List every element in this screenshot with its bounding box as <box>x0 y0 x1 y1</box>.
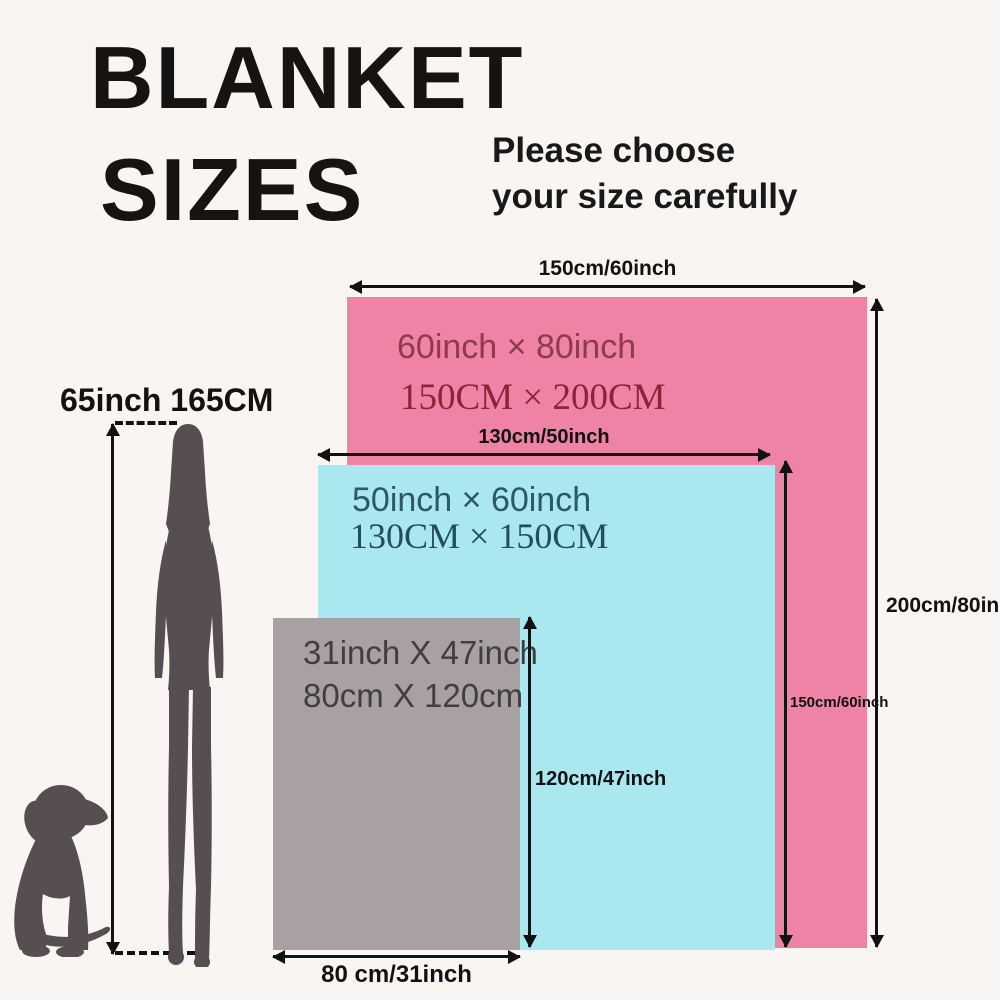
page-title-line2: SIZES <box>100 146 524 234</box>
subtitle: Please choose your size carefully <box>492 128 797 220</box>
dog-silhouette <box>6 782 121 957</box>
page-title-line1: BLANKET <box>90 34 524 122</box>
blanket-large-cm-label: 150CM × 200CM <box>400 376 666 419</box>
width-label-small: 80 cm/31inch <box>250 961 543 989</box>
blanket-medium-cm-label: 130CM × 150CM <box>350 515 608 557</box>
height-arrow-medium <box>784 461 787 947</box>
width-arrow-large <box>350 285 865 288</box>
height-label-small: 120cm/47inch <box>535 768 666 791</box>
blanket-large-inch-label: 60inch × 80inch <box>397 328 636 367</box>
height-label-large: 200cm/80inch <box>886 594 1000 618</box>
height-arrow-large <box>875 299 878 947</box>
blanket-size-infographic: BLANKET SIZES Please choose your size ca… <box>0 0 1000 1000</box>
width-label-medium: 130cm/50inch <box>318 426 770 449</box>
woman-silhouette-icon <box>138 422 238 967</box>
width-label-large: 150cm/60inch <box>350 257 865 281</box>
height-arrow-small <box>528 617 531 947</box>
person-height-label: 65inch 165CM <box>60 382 273 419</box>
dog-silhouette-icon <box>6 782 121 957</box>
subtitle-line1: Please choose <box>492 128 797 174</box>
width-arrow-medium <box>318 453 770 456</box>
height-label-medium: 150cm/60inch <box>790 694 888 711</box>
page-title: BLANKET SIZES <box>90 34 524 234</box>
woman-silhouette <box>138 422 238 967</box>
subtitle-line2: your size carefully <box>492 174 797 220</box>
width-arrow-small <box>273 955 520 958</box>
blanket-small-cm-label: 80cm X 120cm <box>303 677 523 715</box>
blanket-small-inch-label: 31inch X 47inch <box>303 634 538 672</box>
